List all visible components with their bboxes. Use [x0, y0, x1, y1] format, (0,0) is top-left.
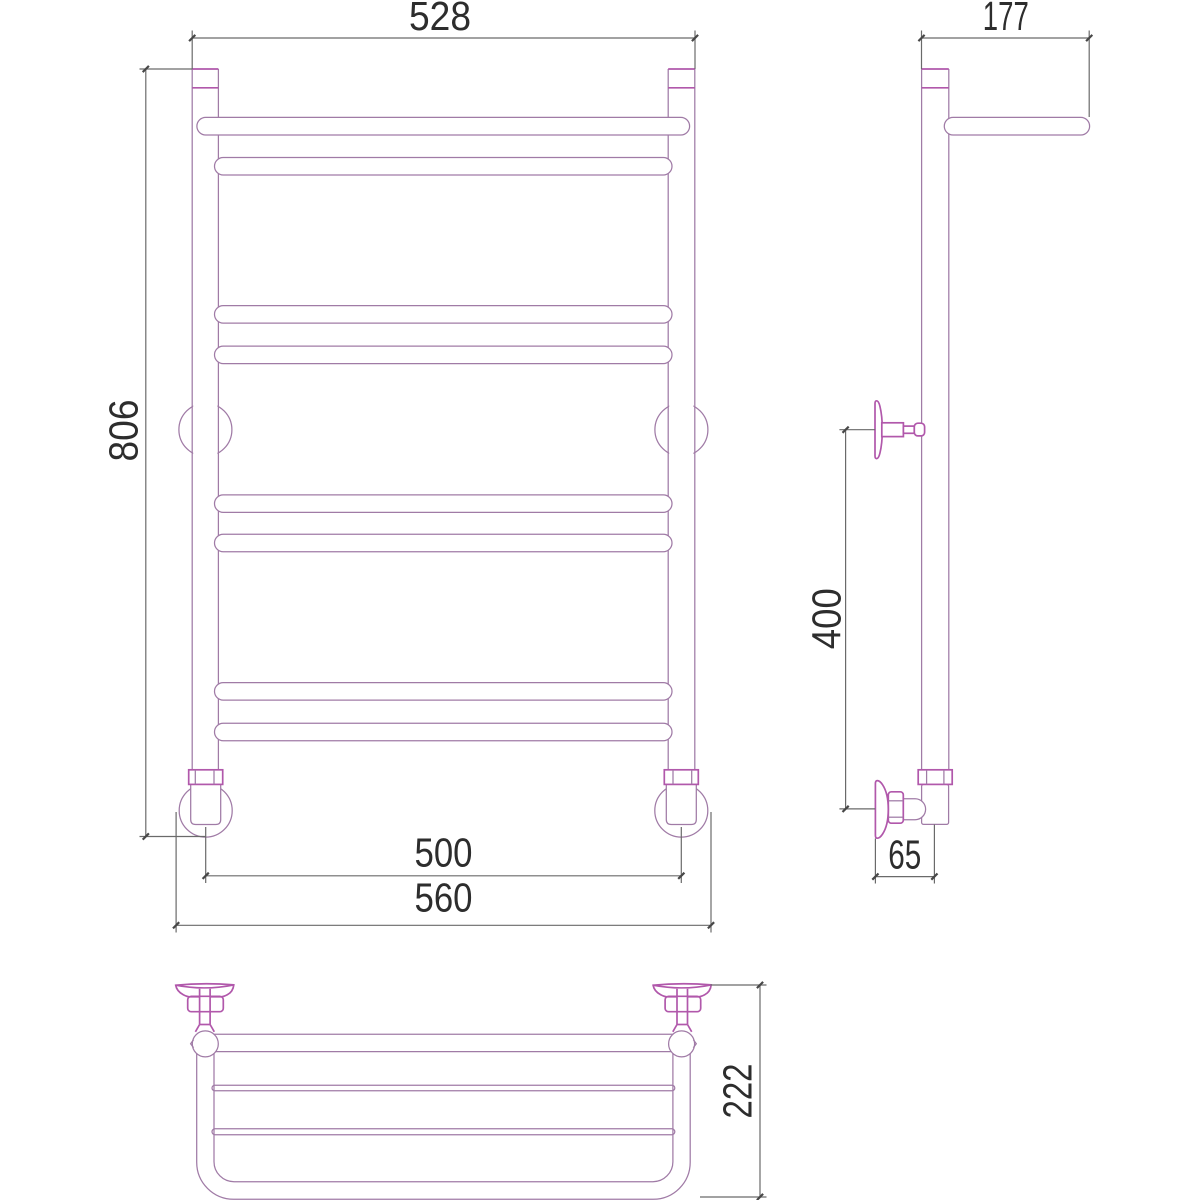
svg-text:528: 528: [409, 0, 471, 39]
svg-text:560: 560: [415, 875, 473, 921]
svg-text:177: 177: [983, 0, 1029, 39]
svg-text:65: 65: [888, 832, 921, 878]
svg-text:806: 806: [101, 400, 147, 462]
svg-text:400: 400: [803, 588, 849, 649]
svg-text:222: 222: [715, 1064, 761, 1119]
svg-text:500: 500: [415, 830, 473, 876]
